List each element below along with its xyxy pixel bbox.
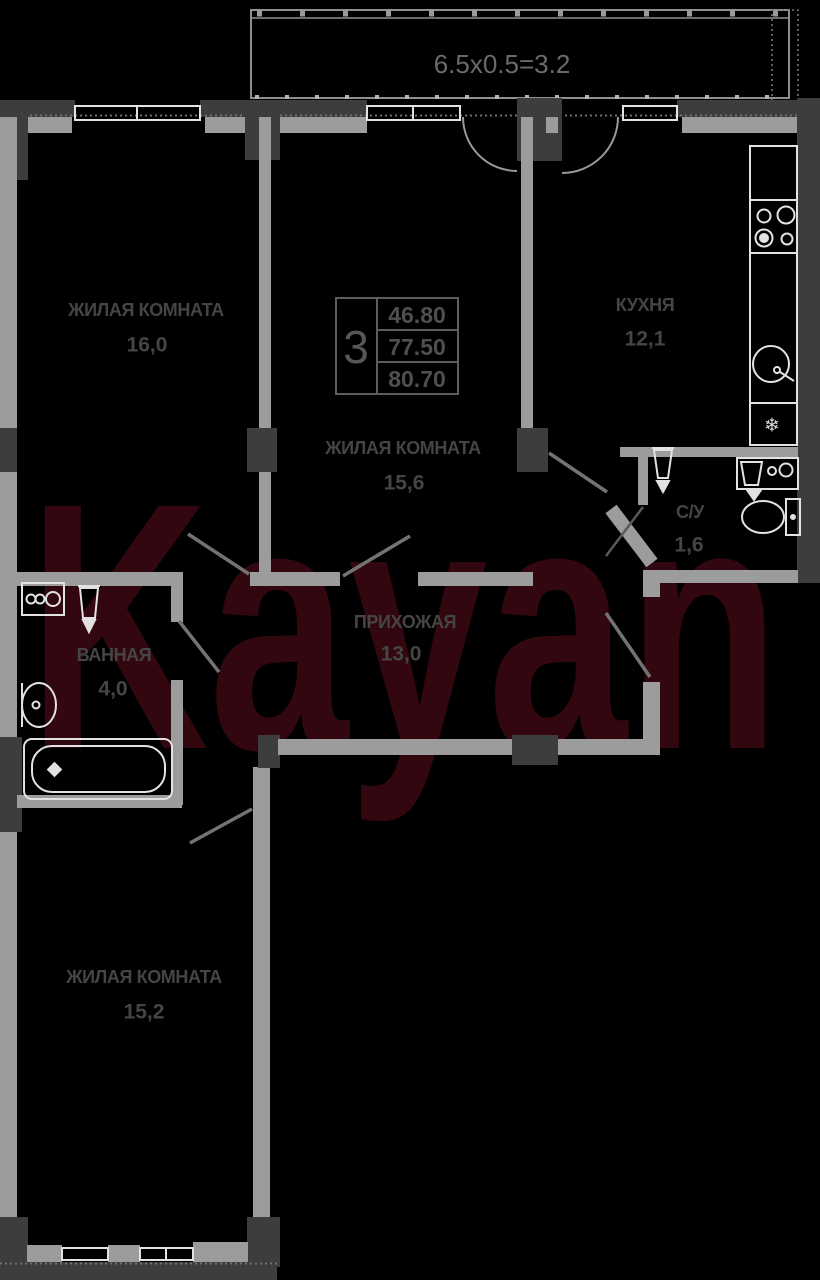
balcony-dimension-label: 6.5х0.5=3.2: [434, 49, 571, 79]
label-living3: ЖИЛАЯ КОМНАТА: [65, 967, 222, 987]
left-exterior-wall: [0, 117, 17, 1245]
label-living2: ЖИЛАЯ КОМНАТА: [324, 438, 481, 458]
balcony-door-arc-kitchen: [562, 117, 618, 173]
window-living2: [367, 106, 460, 120]
window-living1: [75, 106, 200, 120]
area-wc: 1,6: [674, 534, 703, 557]
balcony-door-arc-living2: [463, 117, 517, 171]
info-area-living: 46.80: [388, 302, 446, 328]
info-box: 3 46.80 77.50 80.70: [336, 298, 458, 394]
floor-plan-svg: Kayan 6.5х0.5=3.2: [0, 0, 820, 1280]
info-area-usable: 77.50: [388, 334, 446, 360]
floor-plan: Kayan 6.5х0.5=3.2: [0, 0, 820, 1280]
label-kitchen: КУХНЯ: [616, 295, 675, 315]
fridge-icon: ❄: [764, 416, 780, 437]
label-bathroom: ВАННАЯ: [77, 645, 152, 665]
area-hallway: 13,0: [381, 643, 422, 666]
window-living3-right: [140, 1248, 193, 1260]
label-wc: С/У: [676, 502, 705, 522]
kitchen-fixtures: [750, 146, 797, 445]
window-living3-left: [62, 1248, 108, 1260]
info-room-count: 3: [343, 321, 369, 373]
info-area-total: 80.70: [388, 366, 446, 392]
label-hallway: ПРИХОЖАЯ: [354, 612, 456, 632]
stove-icon: [756, 207, 795, 247]
area-living1: 16,0: [127, 334, 168, 357]
kitchen-sink-icon: [753, 346, 794, 382]
window-kitchen: [623, 106, 677, 120]
area-kitchen: 12,1: [625, 328, 666, 351]
label-living1: ЖИЛАЯ КОМНАТА: [67, 300, 224, 320]
kitchen-counter: [750, 146, 797, 445]
area-living3: 15,2: [124, 1001, 165, 1024]
area-bathroom: 4,0: [98, 678, 127, 701]
area-living2: 15,6: [384, 472, 425, 495]
